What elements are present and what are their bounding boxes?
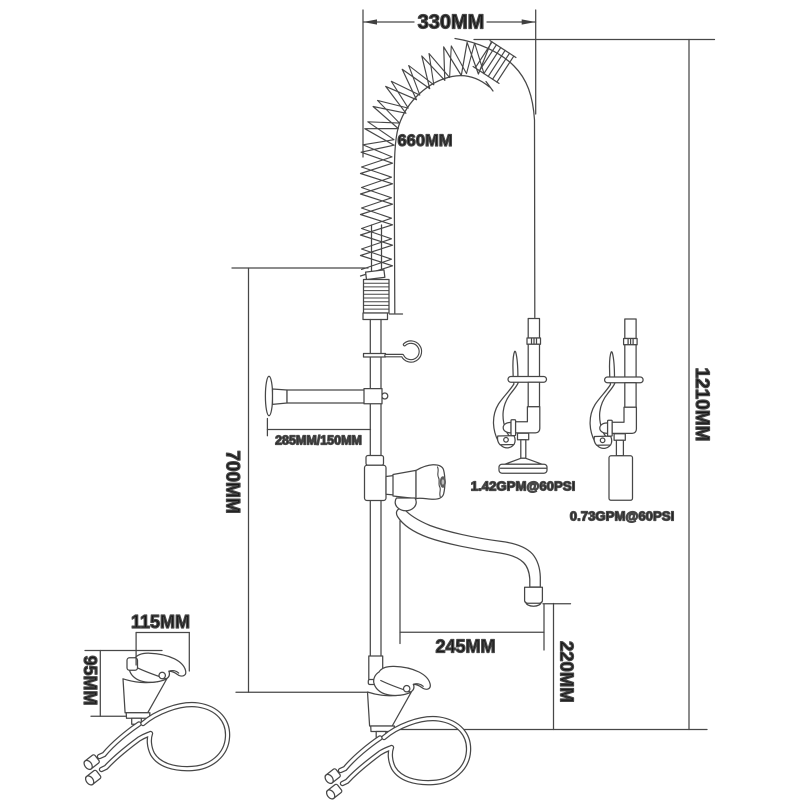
svg-text:95MM: 95MM xyxy=(80,655,100,705)
svg-text:330MM: 330MM xyxy=(418,12,485,34)
svg-text:0.73GPM@60PSI: 0.73GPM@60PSI xyxy=(570,509,675,524)
svg-text:220MM: 220MM xyxy=(557,641,578,703)
svg-text:700MM: 700MM xyxy=(222,450,243,513)
svg-text:115MM: 115MM xyxy=(131,612,190,632)
svg-text:660MM: 660MM xyxy=(397,132,452,150)
svg-text:1210MM: 1210MM xyxy=(691,368,712,442)
svg-text:245MM: 245MM xyxy=(435,637,495,657)
svg-text:1.42GPM@60PSI: 1.42GPM@60PSI xyxy=(471,479,576,494)
svg-text:285MM/150MM: 285MM/150MM xyxy=(275,434,362,448)
